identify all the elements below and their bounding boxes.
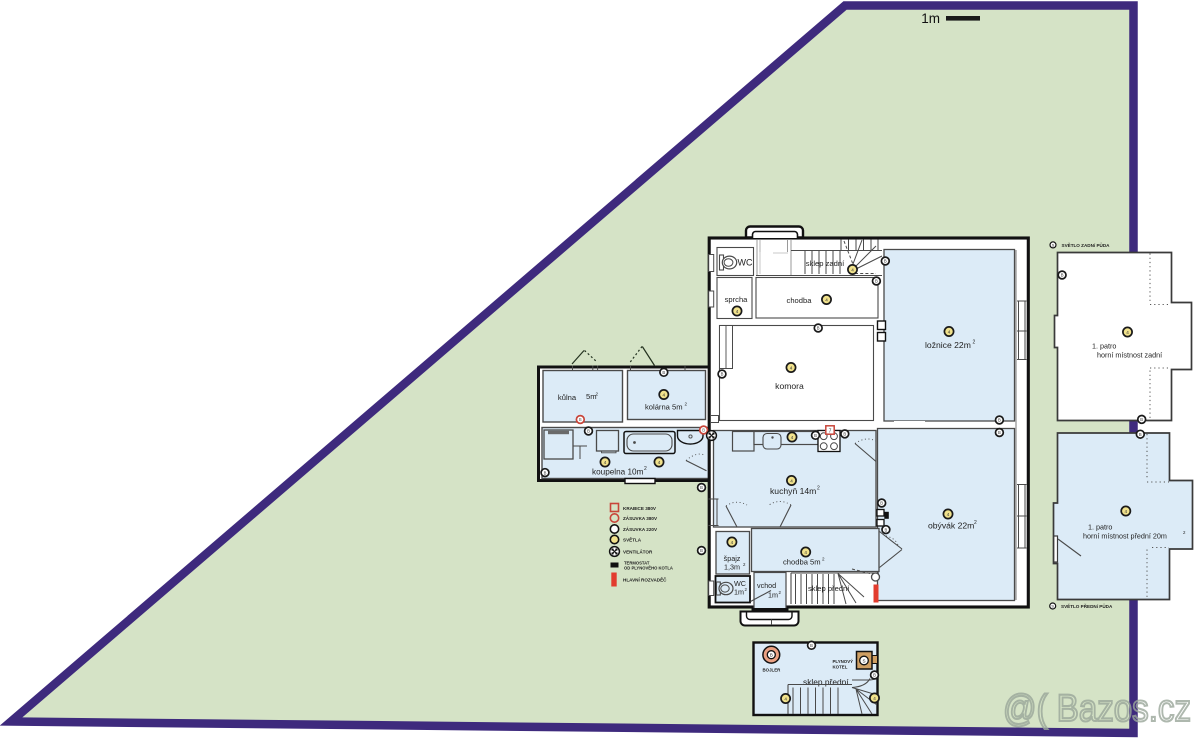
svg-text:1,3m: 1,3m bbox=[724, 563, 740, 572]
svg-text:sklep zadní: sklep zadní bbox=[806, 259, 845, 268]
svg-text:kůlna: kůlna bbox=[558, 393, 577, 402]
svg-text:SVĚTLA: SVĚTLA bbox=[623, 536, 642, 543]
svg-text:SVĚTLO PŘEDNí PŮDA: SVĚTLO PŘEDNí PŮDA bbox=[1061, 602, 1113, 609]
svg-text:chodba: chodba bbox=[787, 296, 813, 305]
svg-text:2: 2 bbox=[685, 402, 688, 407]
svg-text:2: 2 bbox=[817, 486, 820, 492]
svg-text:B: B bbox=[770, 653, 773, 658]
svg-text:S: S bbox=[1051, 605, 1054, 609]
svg-text:OD PLYNOVÉHO KOTLA: OD PLYNOVÉHO KOTLA bbox=[624, 566, 673, 571]
svg-text:horní místnost zadní: horní místnost zadní bbox=[1097, 351, 1162, 360]
svg-text:S: S bbox=[862, 658, 865, 663]
svg-text:S: S bbox=[1052, 244, 1055, 248]
svg-text:2: 2 bbox=[974, 520, 977, 526]
svg-text:SVĚTLO ZADNí PŮDA: SVĚTLO ZADNí PŮDA bbox=[1062, 241, 1111, 248]
svg-text:obývák 22m: obývák 22m bbox=[928, 521, 974, 531]
svg-text:1m: 1m bbox=[921, 11, 940, 26]
svg-text:BOJLER: BOJLER bbox=[763, 668, 782, 673]
svg-text:horní místnost přední 20m: horní místnost přední 20m bbox=[1083, 532, 1167, 541]
svg-text:HLAVNÍ ROZVADĚČ: HLAVNÍ ROZVADĚČ bbox=[623, 576, 667, 583]
svg-text:chodba 5m: chodba 5m bbox=[783, 558, 821, 567]
svg-text:koupelna 10m: koupelna 10m bbox=[592, 468, 644, 477]
svg-text:KOTEL: KOTEL bbox=[833, 665, 848, 670]
svg-text:VENTILÁTOR: VENTILÁTOR bbox=[623, 549, 653, 555]
svg-text:kolárna 5m: kolárna 5m bbox=[645, 403, 683, 412]
svg-text:sprcha: sprcha bbox=[725, 295, 749, 304]
svg-text:1. patro: 1. patro bbox=[1092, 342, 1116, 351]
svg-text:ložnice 22m: ložnice 22m bbox=[925, 340, 971, 350]
svg-text:1m: 1m bbox=[734, 588, 744, 597]
svg-text:KRABICE 380V: KRABICE 380V bbox=[623, 506, 657, 511]
svg-text:@( Bazos.cz: @( Bazos.cz bbox=[1003, 688, 1191, 730]
svg-text:2: 2 bbox=[596, 392, 599, 397]
svg-text:1. patro: 1. patro bbox=[1088, 523, 1112, 532]
svg-text:ZÁSUVKA 380V: ZÁSUVKA 380V bbox=[623, 515, 658, 521]
svg-text:7: 7 bbox=[829, 429, 832, 435]
svg-text:WC: WC bbox=[738, 258, 753, 268]
svg-text:komora: komora bbox=[775, 381, 804, 391]
svg-text:vchod: vchod bbox=[757, 581, 776, 590]
svg-text:kuchyň 14m: kuchyň 14m bbox=[770, 486, 816, 496]
svg-text:sklep přední: sklep přední bbox=[808, 584, 850, 593]
svg-text:2: 2 bbox=[644, 466, 647, 472]
svg-text:PLYNOVÝ: PLYNOVÝ bbox=[833, 659, 854, 664]
svg-text:sklep přední: sklep přední bbox=[803, 677, 849, 687]
svg-text:2: 2 bbox=[973, 340, 976, 346]
svg-text:2: 2 bbox=[822, 557, 825, 562]
svg-text:ZÁSUVKA 220V: ZÁSUVKA 220V bbox=[623, 526, 658, 532]
